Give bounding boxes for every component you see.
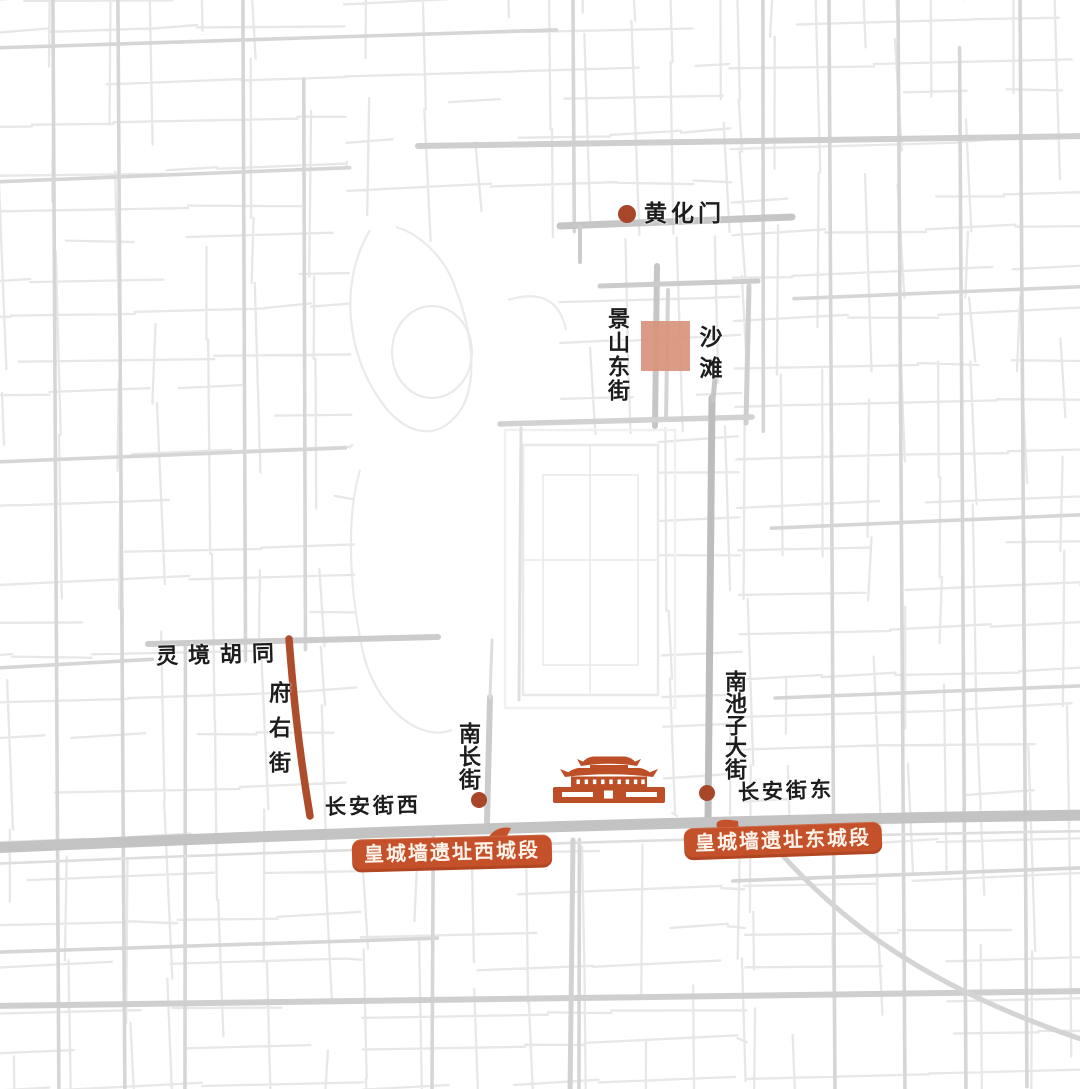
label-nanchang-street: 南长街 — [457, 722, 479, 791]
shatan-area-highlight — [641, 321, 690, 371]
map-canvas — [0, 0, 1080, 1089]
banner-west-text: 皇城墙遗址西城段 — [352, 834, 553, 872]
medium-streets — [0, 0, 1080, 1089]
label-changan-street-west: 长安街西 — [325, 795, 422, 819]
nanchizi-street-marker — [699, 785, 715, 801]
label-changan-street-east: 长安街东 — [738, 779, 835, 803]
tiananmen-gate-icon — [553, 757, 665, 804]
label-fuyou-street: 府右街 — [267, 681, 289, 786]
label-lingjing-hutong: 灵境胡同 — [156, 642, 285, 667]
banner-west-section: 皇城墙遗址西城段 — [352, 834, 553, 872]
road-nanchang — [487, 697, 490, 822]
beijing-imperial-city-wall-map: 黄化门 景山东街 沙滩 灵境胡同 府右街 南长街 南池子大街 长安街西 长安街东… — [0, 0, 1080, 1089]
fuyou-street-highlight — [289, 639, 310, 816]
park-contours — [350, 227, 566, 733]
hutong-grid — [0, 0, 1080, 1089]
huanghuamen-marker — [618, 205, 636, 223]
label-shatan: 沙滩 — [697, 325, 720, 387]
label-nanchizi-street: 南池子大街 — [723, 670, 745, 780]
palace-outline — [505, 430, 675, 708]
road-nanchizi — [708, 398, 712, 822]
label-jingshan-east-street: 景山东街 — [606, 307, 628, 403]
nanchang-street-marker — [471, 792, 487, 808]
label-huanghuamen: 黄化门 — [644, 202, 725, 225]
